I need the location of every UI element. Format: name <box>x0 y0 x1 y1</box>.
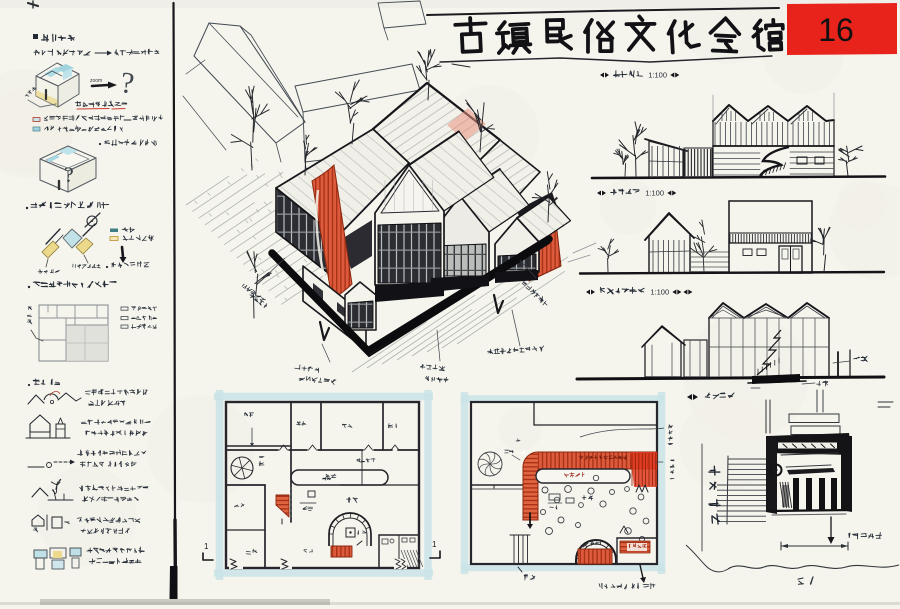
svg-text:?: ? <box>64 162 74 187</box>
svg-text:1: 1 <box>204 542 209 551</box>
svg-text:1:100: 1:100 <box>645 189 664 198</box>
svg-text:16: 16 <box>818 12 854 48</box>
svg-text:1: 1 <box>432 540 437 549</box>
svg-text:zoom: zoom <box>90 78 102 84</box>
svg-text:1:100: 1:100 <box>648 71 667 80</box>
svg-text:1:100: 1:100 <box>650 288 669 297</box>
